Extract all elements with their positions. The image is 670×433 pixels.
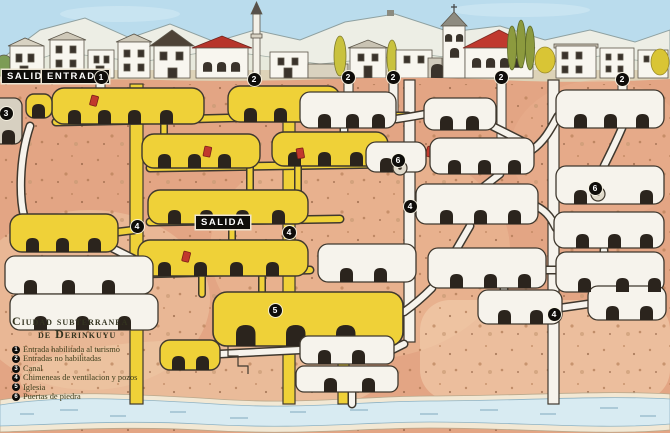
legend-bullet-4: 4 [12, 374, 20, 382]
legend-list: 1Entrada habilitada al turismo2Entradas … [12, 345, 222, 401]
legend-item-1: 1Entrada habilitada al turismo [12, 345, 222, 354]
legend-item-2: 2Entradas no habilitadas [12, 354, 222, 363]
house [396, 50, 432, 78]
legend-item-6: 6Puertas de piedra [12, 392, 222, 401]
legend-text: Entradas no habilitadas [23, 354, 101, 363]
marker-4: 4 [548, 308, 561, 321]
poplar-tree [526, 26, 535, 70]
legend-text: Puertas de piedra [23, 392, 81, 401]
minaret [251, 2, 262, 78]
legend-bullet-1: 1 [12, 346, 20, 354]
legend-bullet-6: 6 [12, 393, 20, 401]
house [270, 52, 308, 78]
yellow-tree [535, 47, 555, 73]
legend-bullet-5: 5 [12, 383, 20, 391]
marker-3: 3 [0, 107, 13, 120]
stone-gate [428, 58, 444, 78]
canal-entry [0, 98, 22, 144]
hill-castle [387, 10, 394, 16]
marker-4: 4 [283, 226, 296, 239]
marker-4: 4 [404, 200, 417, 213]
poplar-tree [508, 26, 517, 70]
house [116, 34, 152, 78]
salida-label-mid: SALIDA [196, 216, 250, 229]
poplar-tree [334, 36, 346, 76]
marker-2: 2 [616, 73, 629, 86]
legend-text: Chimeneas de ventilacion y pozos [23, 373, 137, 382]
poplar-tree [517, 20, 526, 68]
marker-6: 6 [589, 182, 602, 195]
marker-2: 2 [342, 71, 355, 84]
derinkuyu-cross-section: SALIDA ENTRADA SALIDA 12222234444566 Ciu… [0, 0, 670, 433]
marker-5: 5 [269, 304, 282, 317]
marker-2: 2 [495, 71, 508, 84]
legend-title-line2: de Derinkuyu [12, 328, 222, 341]
marker-2: 2 [248, 73, 261, 86]
legend: Ciudad subterranea de Derinkuyu 1Entrada… [12, 315, 222, 401]
legend-bullet-3: 3 [12, 365, 20, 373]
marker-6: 6 [392, 154, 405, 167]
house [554, 44, 598, 78]
legend-item-4: 4Chimeneas de ventilacion y pozos [12, 373, 222, 382]
legend-item-3: 3Canal [12, 364, 222, 373]
house [348, 40, 388, 78]
legend-text: Entrada habilitada al turismo [23, 345, 120, 354]
legend-text: Canal [23, 364, 43, 373]
legend-text: Iglesia [23, 383, 45, 392]
marker-1: 1 [95, 71, 108, 84]
yellow-tree [651, 49, 669, 75]
marker-4: 4 [131, 220, 144, 233]
legend-bullet-2: 2 [12, 355, 20, 363]
legend-item-5: 5Iglesia [12, 383, 222, 392]
house [600, 48, 634, 78]
marker-2: 2 [387, 71, 400, 84]
